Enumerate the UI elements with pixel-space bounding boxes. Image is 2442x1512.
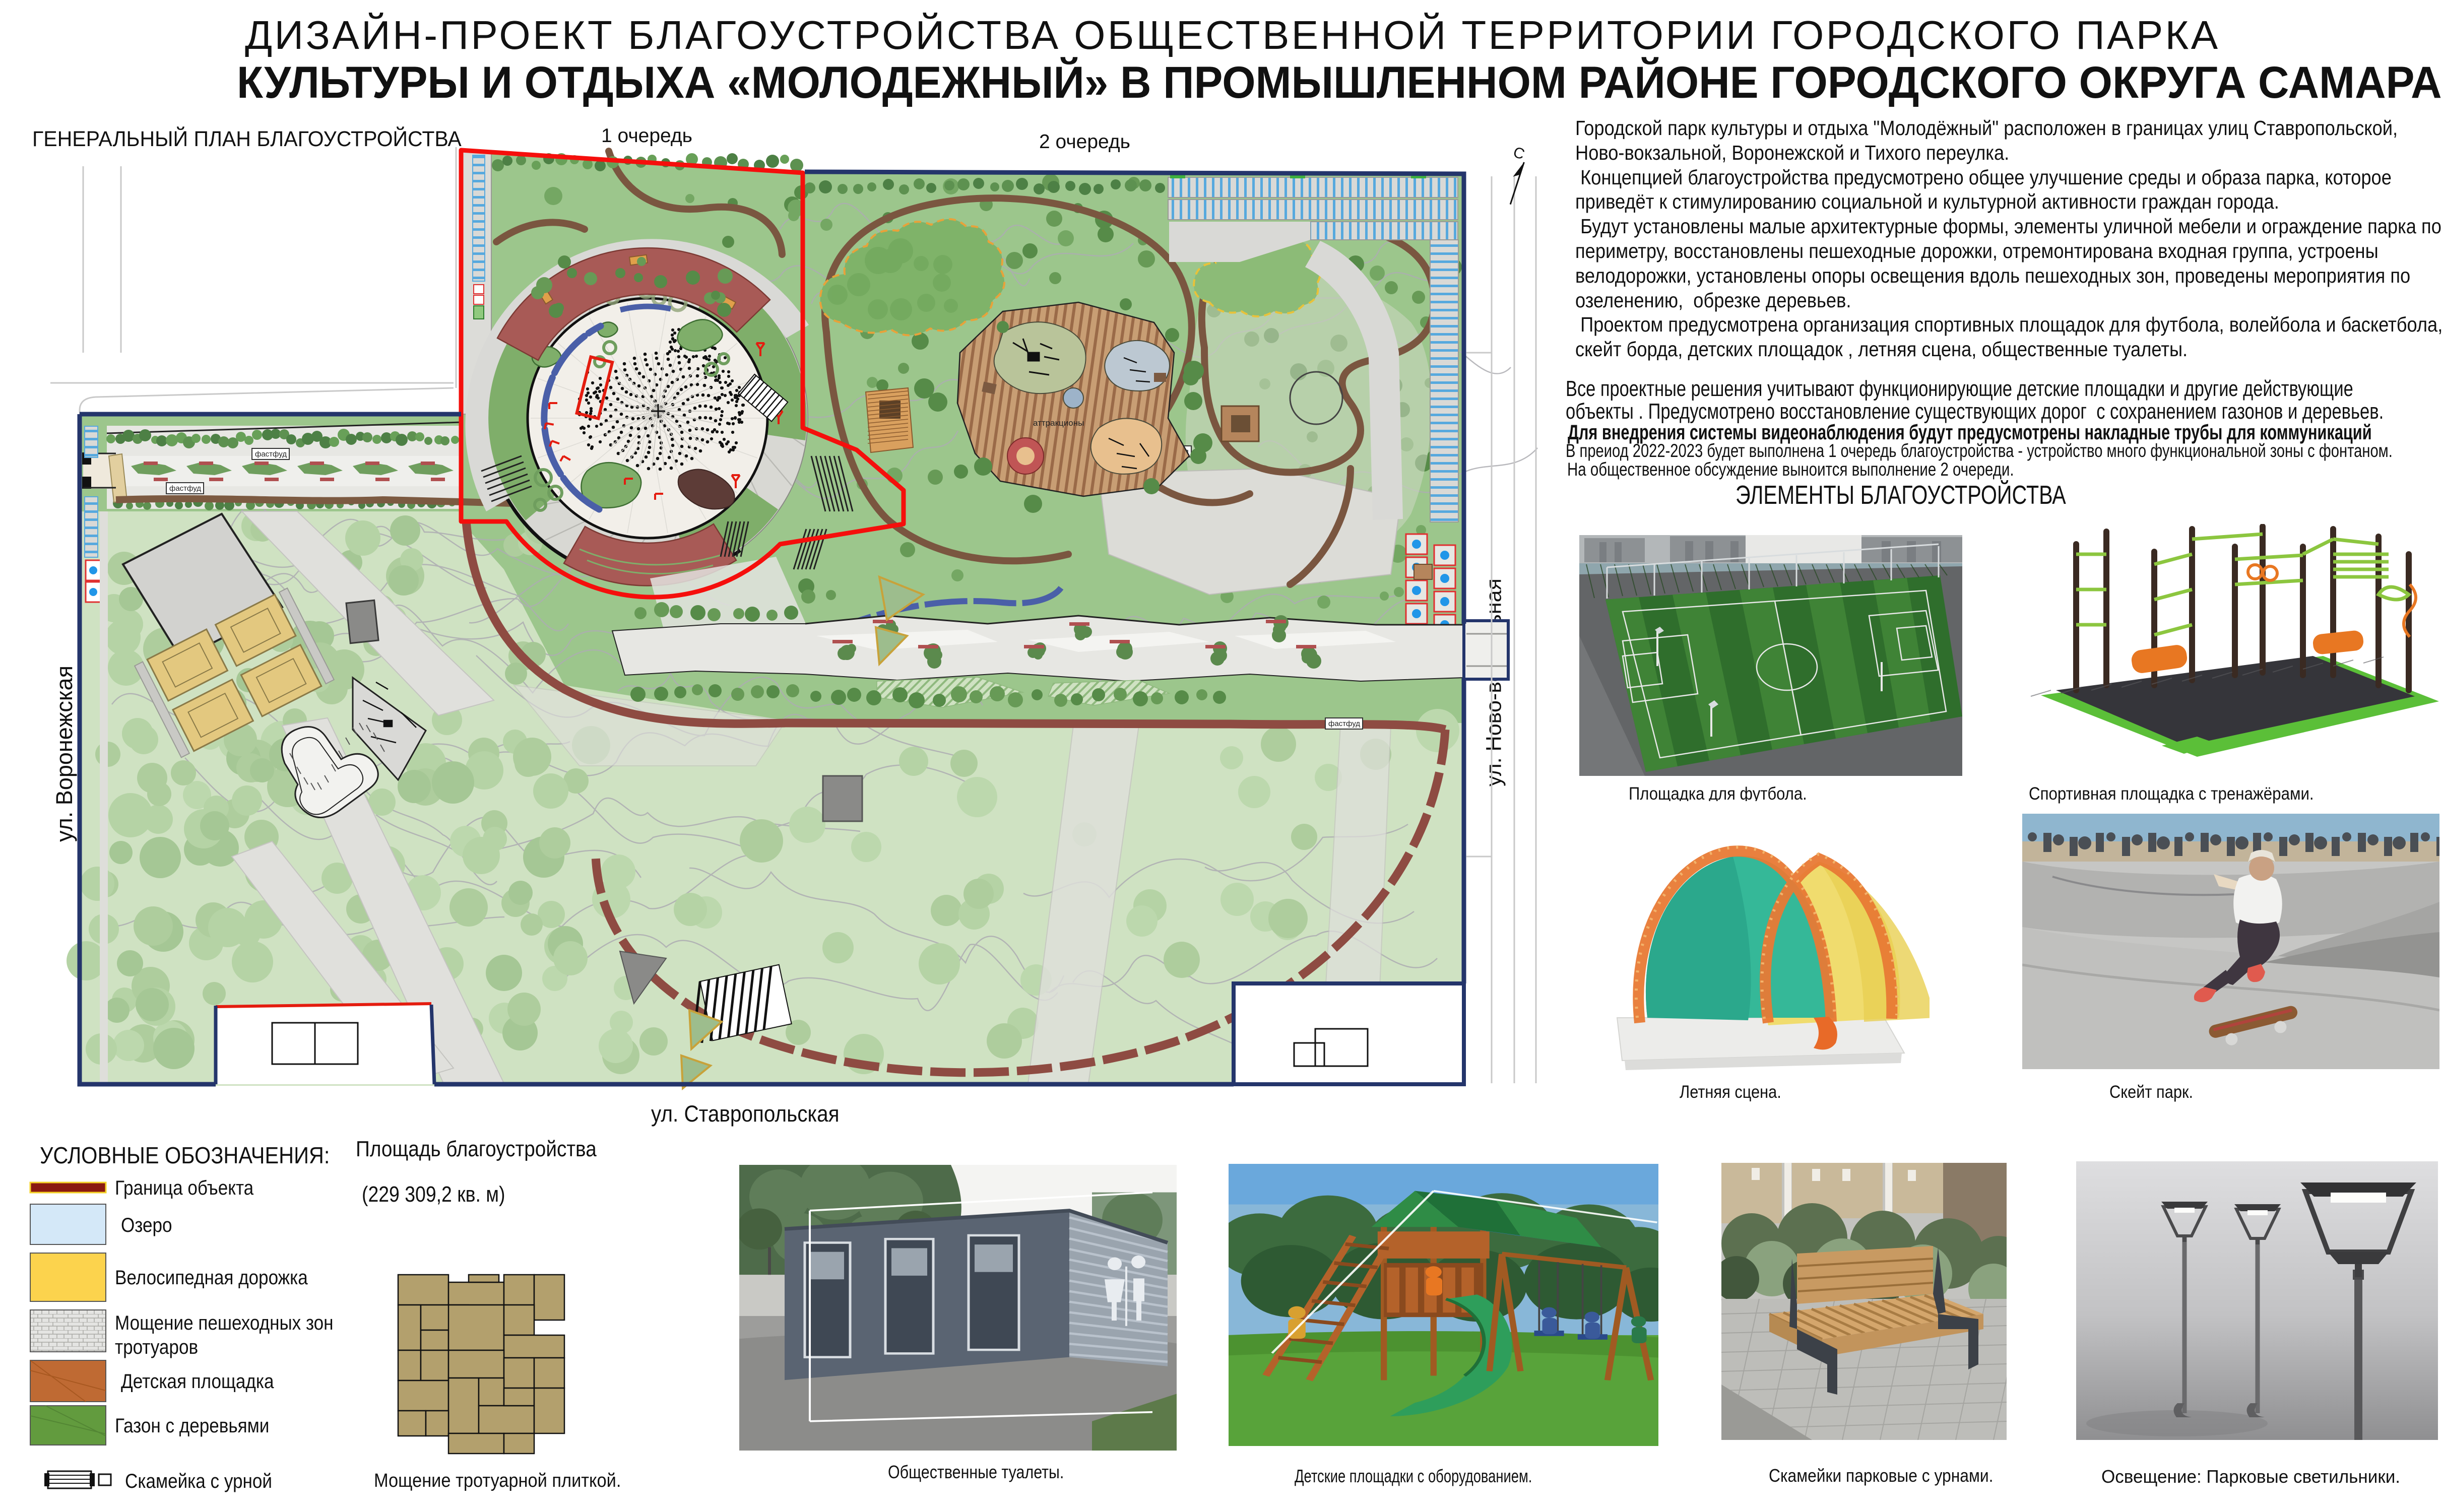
svg-text:фастфуд: фастфуд (255, 450, 287, 458)
svg-text:фастфуд: фастфуд (1328, 719, 1360, 728)
svg-text:фастфуд: фастфуд (169, 484, 201, 493)
svg-text:аттракционы: аттракционы (1033, 418, 1084, 428)
svg-text:С: С (1511, 144, 1527, 163)
